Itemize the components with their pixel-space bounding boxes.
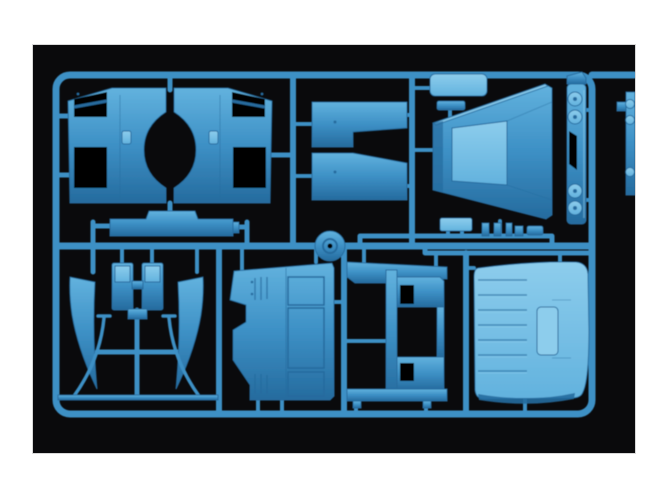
floor-panel <box>230 263 334 400</box>
trim-strip <box>58 395 218 400</box>
edge-part <box>617 92 635 195</box>
small-plate <box>430 74 487 110</box>
rear-frame <box>347 262 447 408</box>
sprue <box>56 72 635 414</box>
bumper-bar <box>110 211 239 236</box>
wind-deflector-left <box>70 277 97 389</box>
wind-deflector-right <box>176 277 203 389</box>
small-fittings <box>440 218 543 236</box>
step-slab-upper <box>312 102 407 147</box>
gate-hub <box>315 231 345 261</box>
headlight-bar <box>567 72 586 224</box>
sprue-drawing <box>33 45 635 453</box>
seat-back-right <box>142 263 163 310</box>
roof-panel <box>474 262 589 404</box>
seat-back-left <box>112 263 133 310</box>
step-slab-lower <box>312 153 407 200</box>
sprue-photo <box>33 45 635 453</box>
cab-side-panels <box>68 88 272 203</box>
